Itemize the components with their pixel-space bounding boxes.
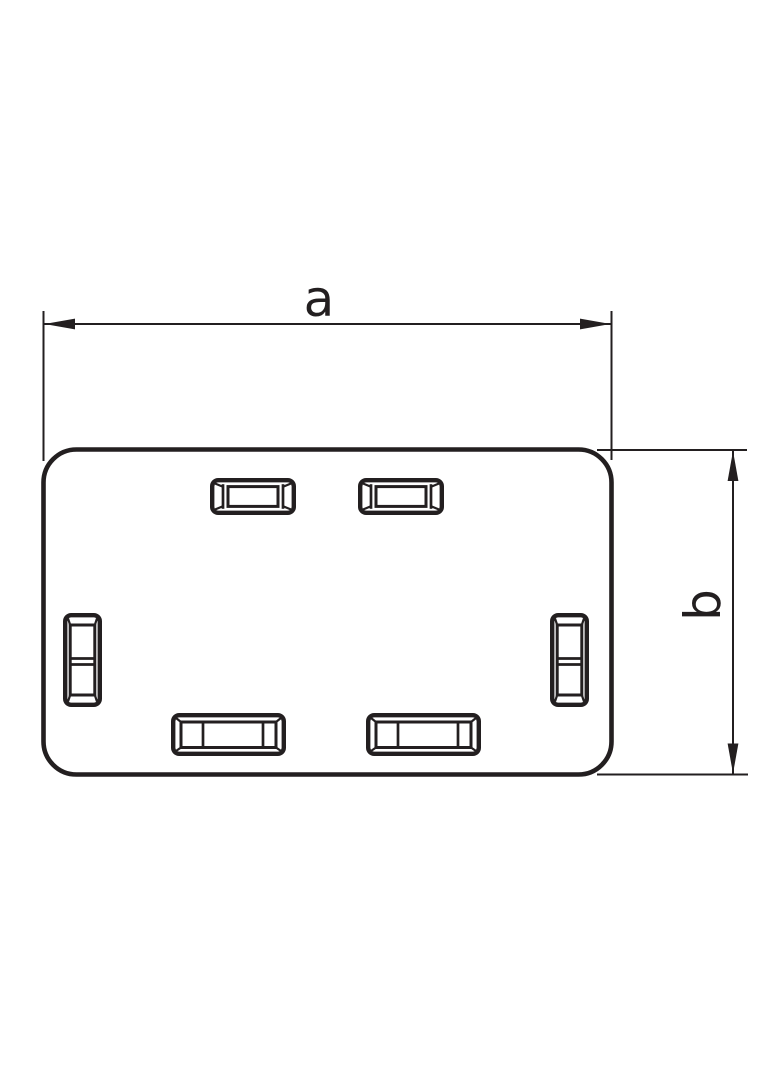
dimension-a bbox=[44, 311, 612, 461]
latch-slot-bottom-left bbox=[173, 715, 284, 754]
arrowhead-a-right bbox=[580, 319, 611, 330]
part-group bbox=[44, 450, 612, 775]
latch-slot-top-left bbox=[212, 480, 294, 513]
latch-slot-top-right bbox=[360, 480, 442, 513]
latch-slot-left bbox=[65, 615, 100, 705]
arrowhead-b-bottom bbox=[728, 744, 739, 774]
dimension-b-label: b bbox=[678, 573, 728, 637]
arrowhead-a-left bbox=[45, 319, 76, 330]
end-cap-drawing bbox=[0, 0, 784, 1066]
technical-drawing-page: a b bbox=[0, 0, 784, 1066]
part-outline bbox=[44, 450, 612, 775]
dimension-a-label: a bbox=[287, 274, 351, 324]
latch-slot-right bbox=[552, 615, 587, 705]
latch-slot-bottom-right bbox=[368, 715, 479, 754]
arrowhead-b-top bbox=[728, 451, 739, 481]
